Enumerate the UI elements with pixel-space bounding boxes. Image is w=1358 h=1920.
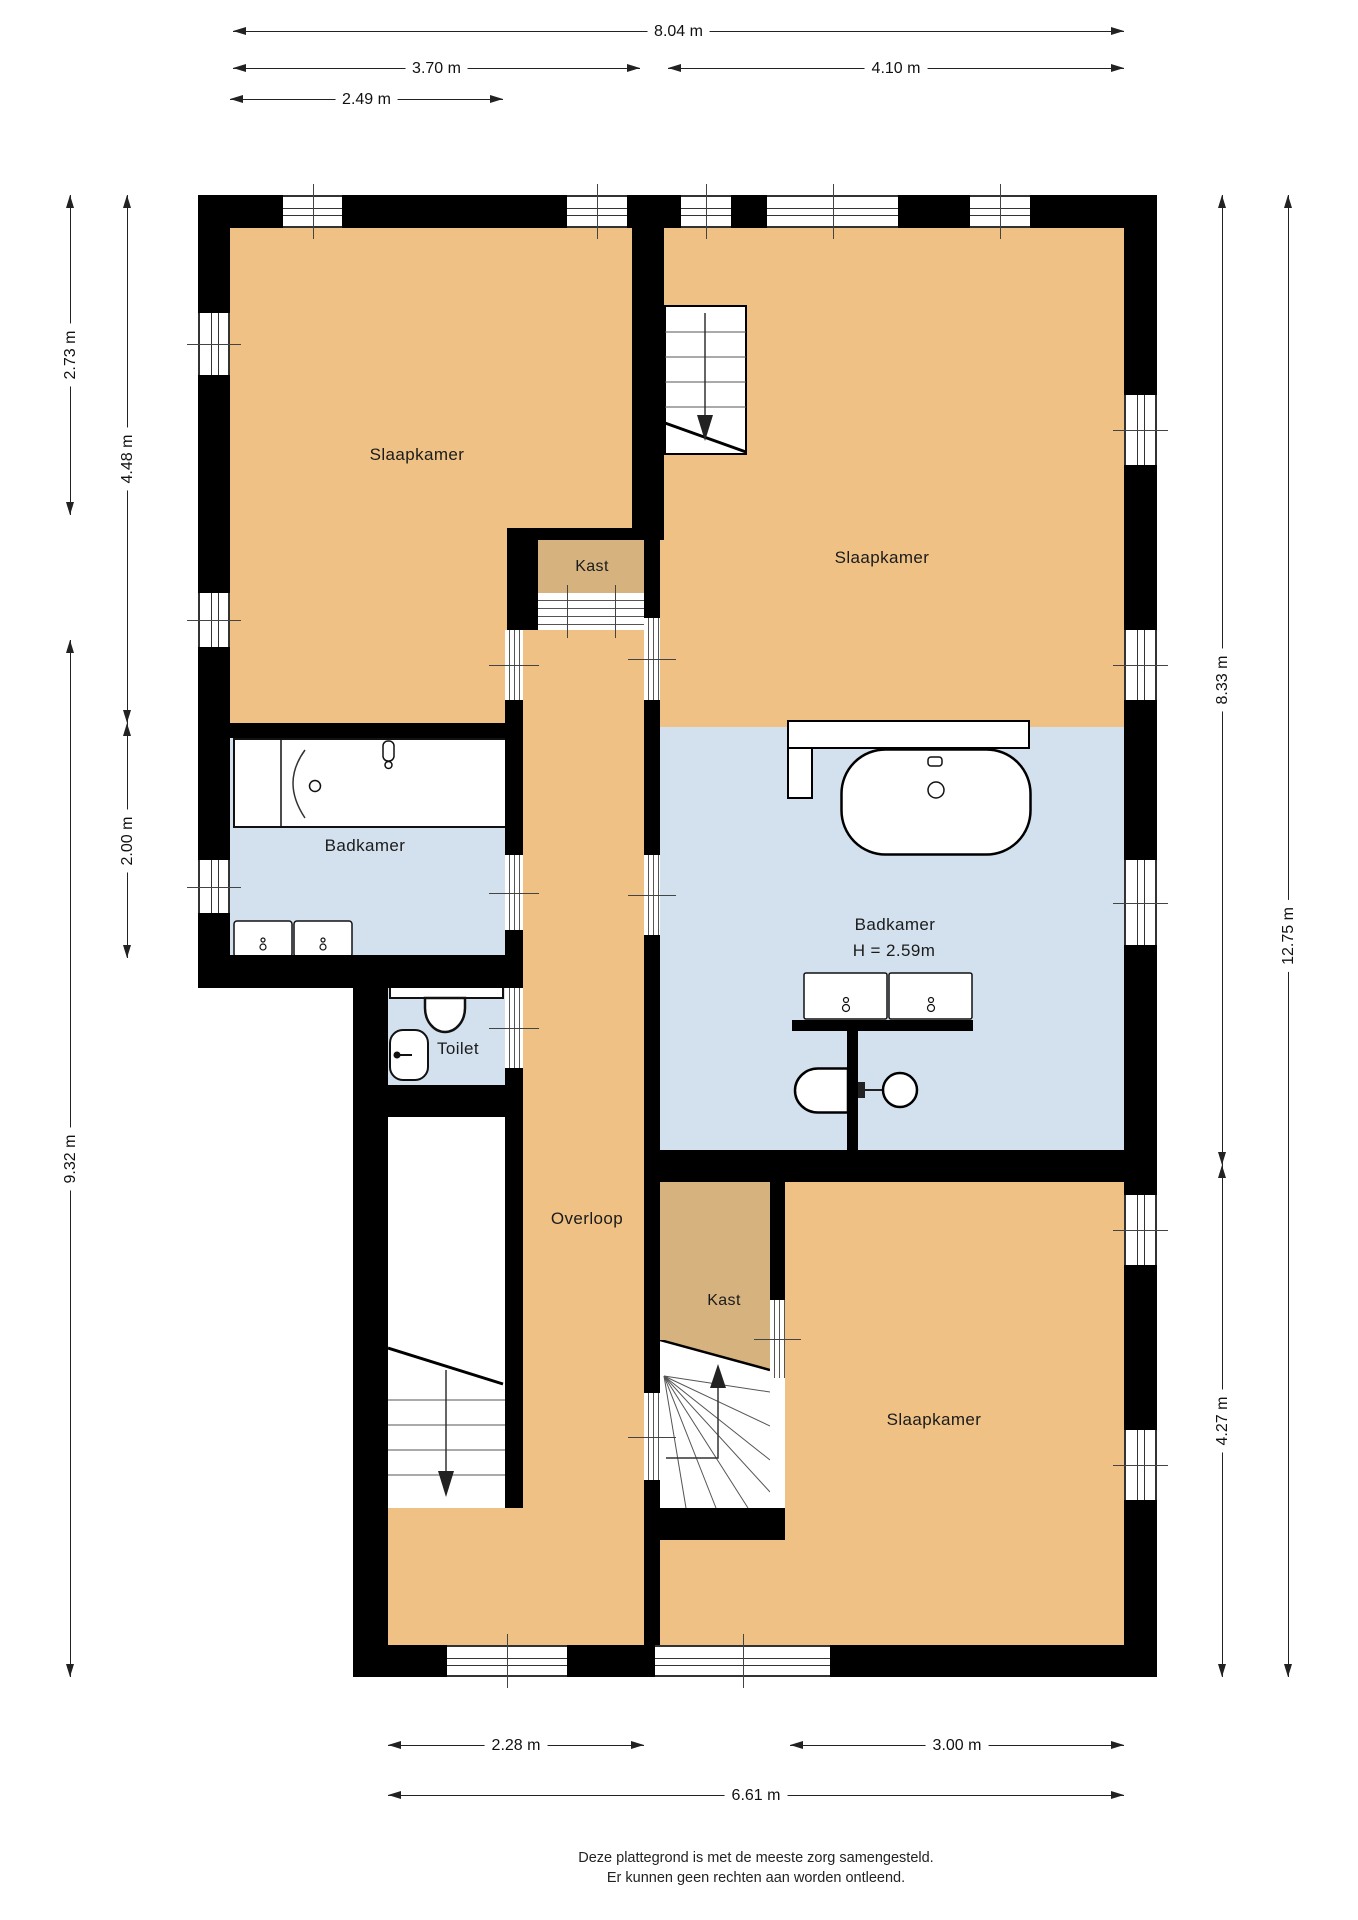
room-label-toilet: Toilet bbox=[437, 1039, 479, 1059]
door-bedroom-top-right bbox=[644, 618, 660, 700]
room-landing-corridor bbox=[523, 630, 644, 1508]
window-right-4 bbox=[1124, 1195, 1157, 1265]
door-bathroom-left bbox=[505, 855, 523, 930]
disclaimer: Deze plattegrond is met de meeste zorg s… bbox=[406, 1848, 1106, 1888]
room-bedroom-top-right bbox=[660, 228, 1124, 727]
wall-toilet-bottom bbox=[353, 1085, 523, 1117]
window-right-5 bbox=[1124, 1430, 1157, 1500]
dimension-right-833: 8.33 m bbox=[1222, 195, 1223, 1165]
wall-left-wing-bottom bbox=[198, 955, 523, 988]
floorplan: Slaapkamer Slaapkamer Kast Badkamer Toil… bbox=[0, 0, 1358, 1920]
dimension-top-total: 8.04 m bbox=[233, 31, 1124, 32]
wall-closet-top-left bbox=[507, 528, 538, 630]
room-label-bedroom-top-right: Slaapkamer bbox=[835, 548, 930, 568]
room-label-bathroom-left: Badkamer bbox=[325, 836, 406, 856]
disclaimer-line2: Er kunnen geen rechten aan worden ontlee… bbox=[406, 1868, 1106, 1888]
room-label-closet-top: Kast bbox=[575, 558, 609, 576]
wall-counter-bar bbox=[792, 1020, 973, 1031]
wall-left-upper bbox=[198, 195, 230, 960]
room-label-bathroom-right-height: H = 2.59m bbox=[853, 941, 936, 961]
wall-center-bedrooms bbox=[632, 195, 664, 540]
door-bedroom-top-left bbox=[505, 630, 523, 700]
dimension-top-small: 2.49 m bbox=[230, 99, 503, 100]
wall-winder-bottom bbox=[660, 1508, 785, 1540]
window-top-4 bbox=[767, 195, 898, 228]
window-left-2 bbox=[198, 593, 230, 647]
toilet-right-icon bbox=[792, 1067, 850, 1114]
vanity-cabinets-right-icon bbox=[803, 972, 973, 1020]
dimension-bottom-661: 6.61 m bbox=[388, 1795, 1124, 1796]
dimension-top-left-room: 3.70 m bbox=[233, 68, 640, 69]
door-toilet bbox=[505, 988, 523, 1068]
window-bottom-2 bbox=[655, 1645, 830, 1677]
dimension-left-273: 2.73 m bbox=[70, 195, 71, 515]
wall-bathroom-right-bottom bbox=[660, 1150, 1124, 1182]
door-closet-bottom bbox=[770, 1300, 785, 1378]
dimension-right-1275: 12.75 m bbox=[1288, 195, 1289, 1677]
room-closet-bottom bbox=[660, 1182, 770, 1340]
wall-bedroom-bathroom-left bbox=[198, 723, 523, 738]
window-right-3 bbox=[1124, 860, 1157, 945]
door-winder-stairs bbox=[644, 1393, 660, 1480]
window-top-1 bbox=[283, 195, 342, 228]
room-label-bedroom-bottom: Slaapkamer bbox=[887, 1410, 982, 1430]
bathtub-right-icon bbox=[840, 748, 1032, 856]
window-left-1 bbox=[198, 313, 230, 375]
dimension-left-200: 2.00 m bbox=[127, 723, 128, 958]
toilet-room-fixtures-icon bbox=[388, 978, 505, 1082]
window-top-3 bbox=[681, 195, 731, 228]
wall-sink-right-icon bbox=[855, 1070, 921, 1110]
room-bedroom-bottom-ext bbox=[660, 1540, 785, 1645]
window-top-5 bbox=[970, 195, 1030, 228]
wall-corridor-left bbox=[505, 630, 523, 1508]
wall-stub-toilet bbox=[847, 1031, 858, 1150]
room-landing-bottom bbox=[388, 1508, 644, 1645]
dimension-top-right-room: 4.10 m bbox=[668, 68, 1124, 69]
dimension-bottom-228: 2.28 m bbox=[388, 1745, 644, 1746]
window-right-1 bbox=[1124, 395, 1157, 465]
dimension-left-448: 4.48 m bbox=[127, 195, 128, 723]
window-bottom-1 bbox=[447, 1645, 567, 1677]
room-label-landing: Overloop bbox=[551, 1209, 623, 1229]
staircase-down-top-icon bbox=[664, 305, 747, 455]
disclaimer-line1: Deze plattegrond is met de meeste zorg s… bbox=[406, 1848, 1106, 1868]
door-closet-top bbox=[538, 593, 644, 630]
dimension-left-932: 9.32 m bbox=[70, 640, 71, 1677]
door-bathroom-right bbox=[644, 855, 660, 935]
staircase-down-bottom-icon bbox=[388, 1345, 505, 1508]
room-label-bathroom-right: Badkamer bbox=[855, 915, 936, 935]
window-left-3 bbox=[198, 860, 230, 913]
dimension-bottom-300: 3.00 m bbox=[790, 1745, 1124, 1746]
dimension-right-427: 4.27 m bbox=[1222, 1165, 1223, 1677]
wall-left-lower bbox=[353, 955, 388, 1677]
room-label-bedroom-top-left: Slaapkamer bbox=[370, 445, 465, 465]
window-top-2 bbox=[567, 195, 627, 228]
vanity-cabinets-left-icon bbox=[233, 920, 353, 958]
staircase-up-winder-icon bbox=[660, 1340, 770, 1510]
room-label-closet-bottom: Kast bbox=[707, 1292, 741, 1310]
window-right-2 bbox=[1124, 630, 1157, 700]
bathtub-left-icon bbox=[233, 738, 507, 828]
